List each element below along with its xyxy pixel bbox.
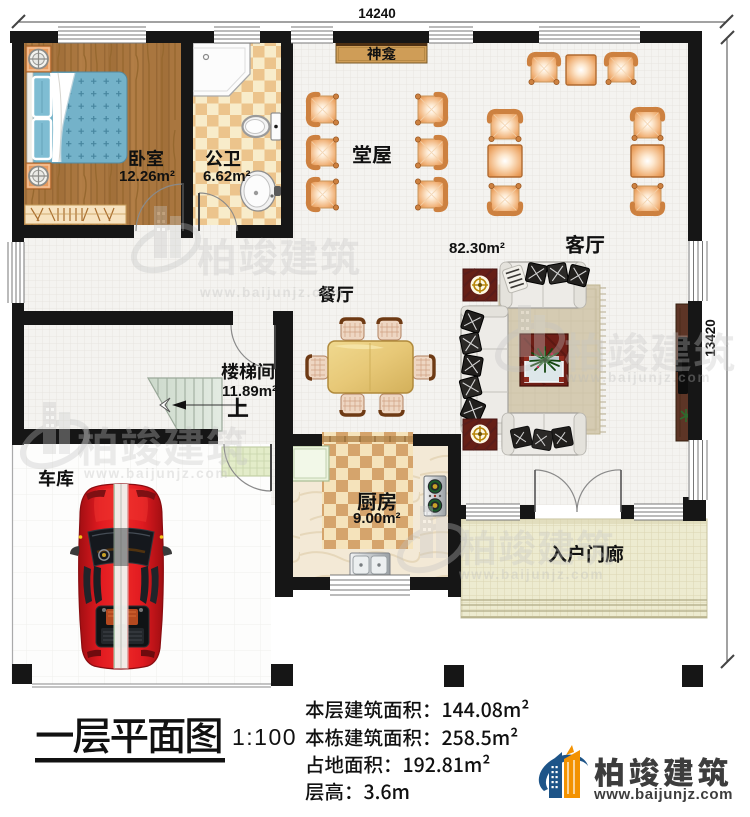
svg-text:82.30m²: 82.30m²	[449, 240, 505, 257]
svg-text:1:100: 1:100	[232, 724, 297, 750]
svg-text:12.26m²: 12.26m²	[119, 168, 175, 185]
svg-text:www.baijunjz.com: www.baijunjz.com	[458, 567, 604, 582]
svg-text:www.baijunjz.com: www.baijunjz.com	[565, 370, 711, 385]
svg-text:9.00m²: 9.00m²	[353, 510, 401, 527]
svg-text:www.baijunjz.com: www.baijunjz.com	[83, 466, 229, 481]
svg-text:www.baijunjz.com: www.baijunjz.com	[593, 786, 733, 803]
svg-text:6.62m²: 6.62m²	[203, 168, 251, 185]
svg-text:14240: 14240	[358, 6, 396, 21]
svg-text:www.baijunjz.com: www.baijunjz.com	[199, 285, 345, 300]
svg-text:11.89m²: 11.89m²	[222, 383, 277, 400]
